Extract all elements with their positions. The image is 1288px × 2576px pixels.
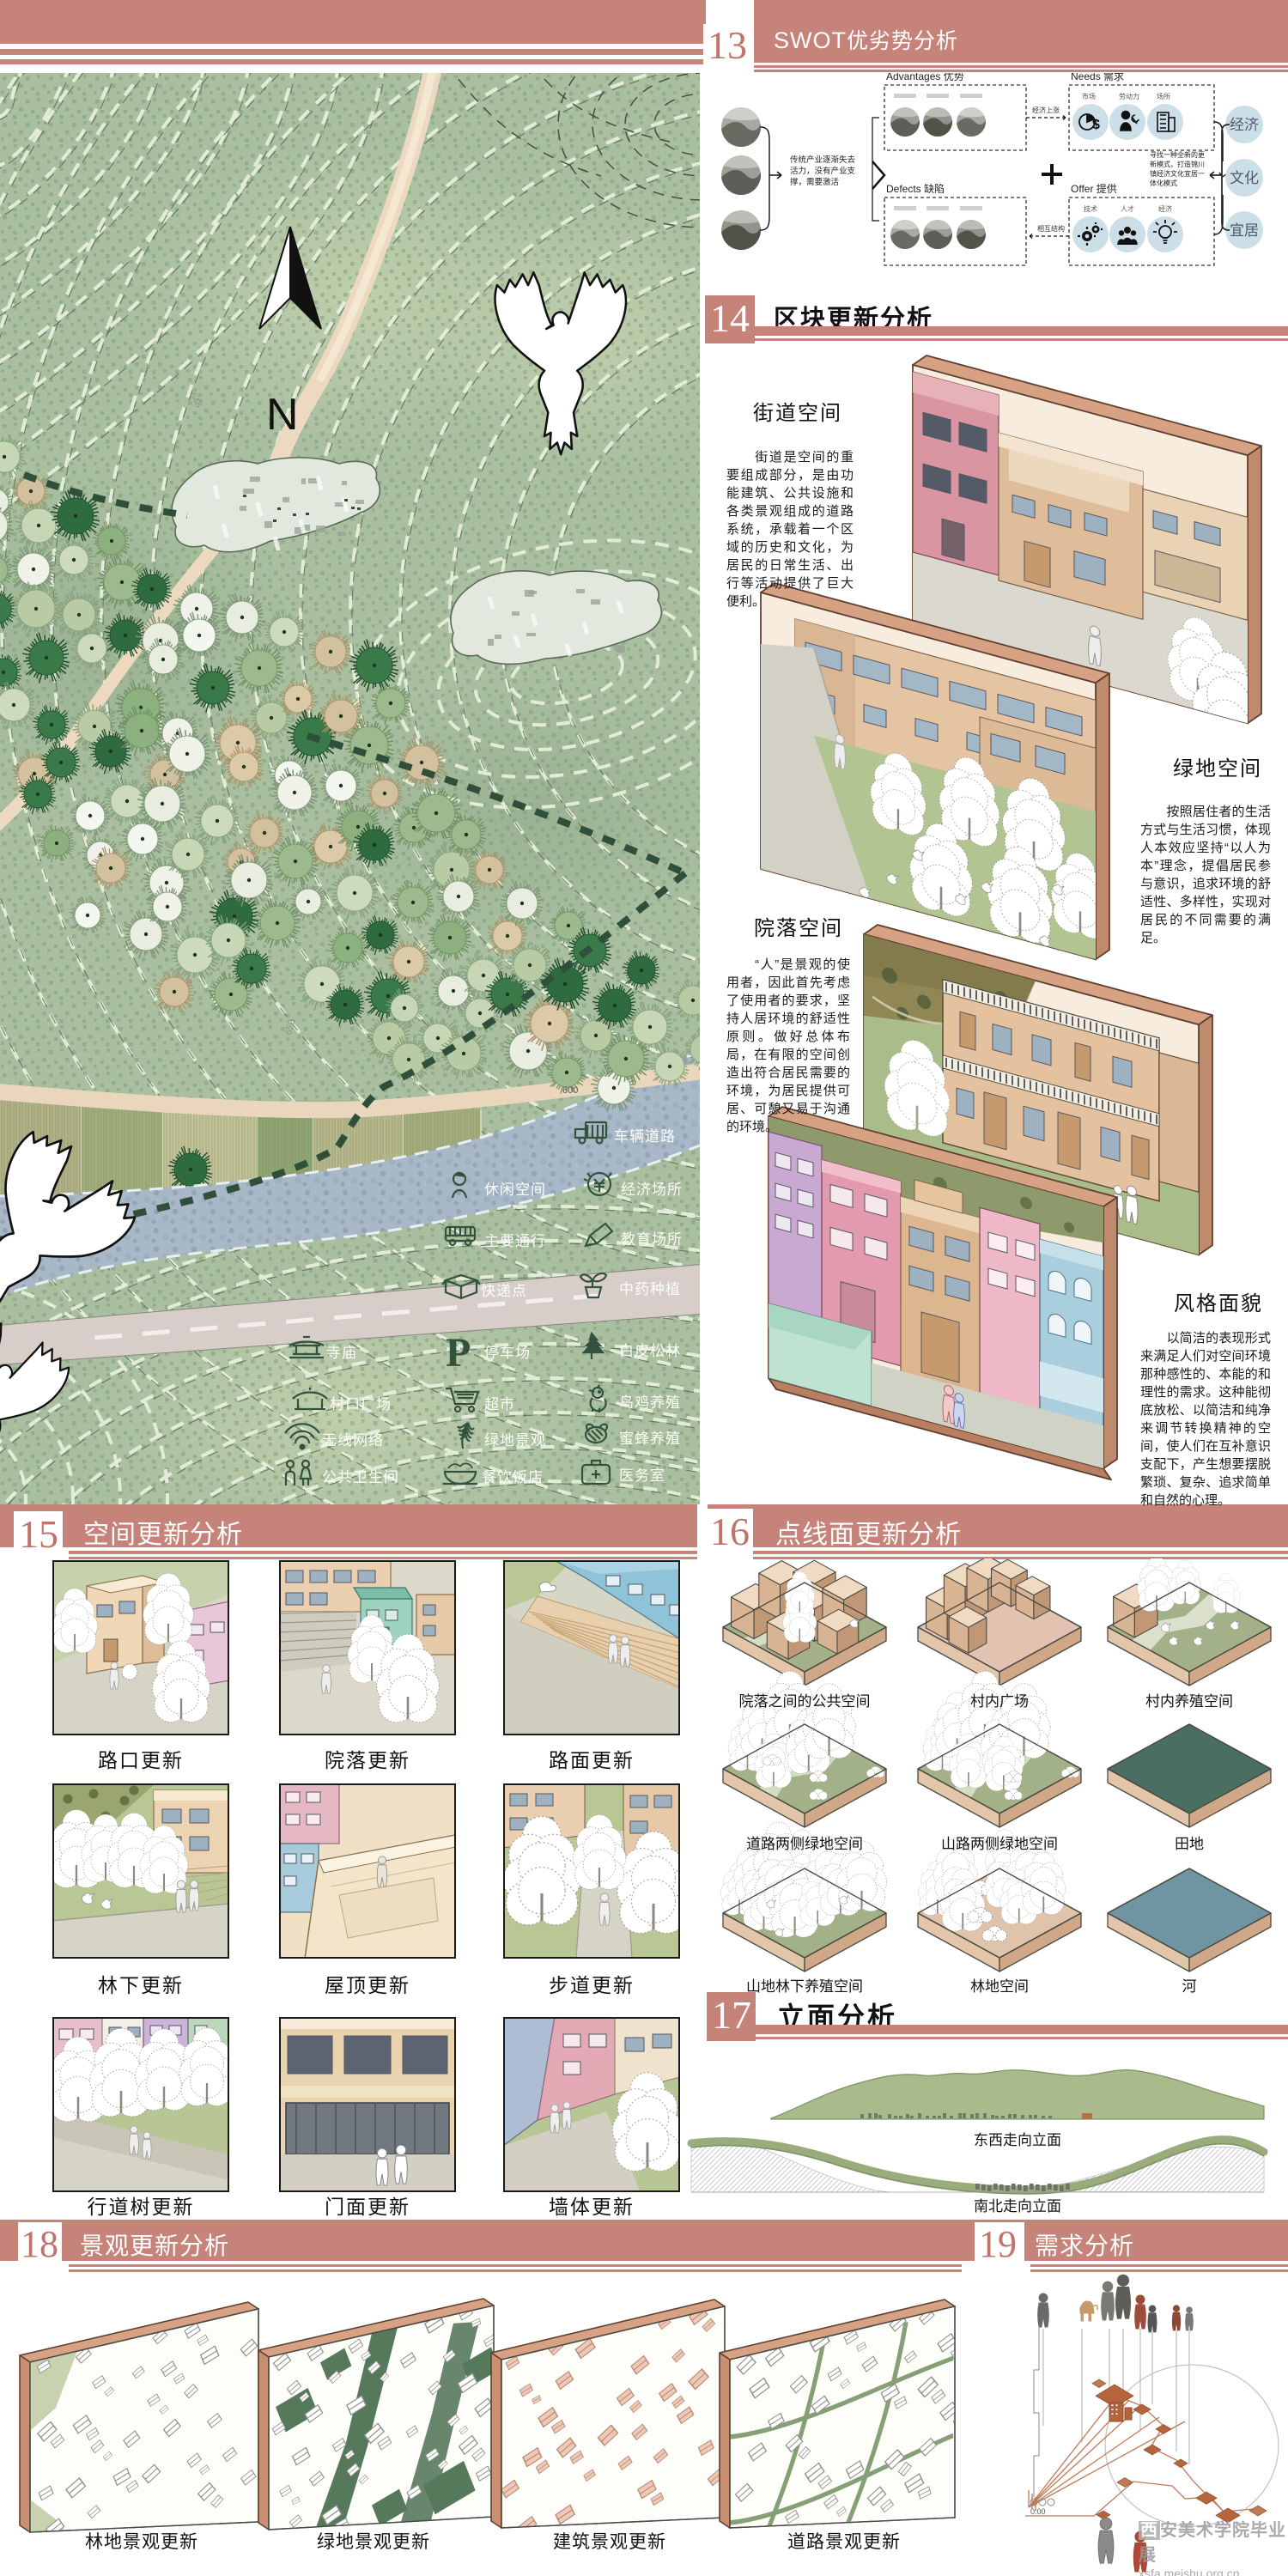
svg-text:寻找一种全新的更: 寻找一种全新的更 xyxy=(1150,150,1205,159)
svg-text:寺庙: 寺庙 xyxy=(326,1345,357,1361)
svg-text:$: $ xyxy=(1092,118,1100,132)
svg-text:宜居: 宜居 xyxy=(1230,222,1259,239)
svg-text:N: N xyxy=(266,390,299,440)
svg-text:医务室: 医务室 xyxy=(619,1467,665,1484)
svg-text:体化模式: 体化模式 xyxy=(1150,179,1177,187)
svg-text:绿地景观: 绿地景观 xyxy=(484,1432,546,1449)
svg-text:Defects 缺陷: Defects 缺陷 xyxy=(886,182,945,195)
svg-text:劳动力: 劳动力 xyxy=(1119,92,1139,100)
svg-text:活力，没有产业支: 活力，没有产业支 xyxy=(790,166,856,176)
svg-text:车辆道路: 车辆道路 xyxy=(614,1128,676,1145)
svg-text:P: P xyxy=(446,1330,471,1376)
svg-text:主要通行: 主要通行 xyxy=(484,1233,546,1249)
svg-text:Advantages 优势: Advantages 优势 xyxy=(886,73,964,82)
svg-text:蜜蜂养殖: 蜜蜂养殖 xyxy=(619,1431,681,1447)
svg-text:中药种植: 中药种植 xyxy=(619,1281,681,1297)
svg-text:撑，需要激活: 撑，需要激活 xyxy=(790,177,840,187)
svg-text:传统产业逐渐失去: 传统产业逐渐失去 xyxy=(790,155,856,165)
svg-text:技术: 技术 xyxy=(1084,204,1097,213)
svg-text:0:00: 0:00 xyxy=(1030,2507,1046,2516)
svg-text:经济场所: 经济场所 xyxy=(621,1182,683,1198)
svg-text:餐饮饭店: 餐饮饭店 xyxy=(482,1469,544,1485)
svg-text:公共卫生间: 公共卫生间 xyxy=(322,1469,399,1485)
svg-text:场所: 场所 xyxy=(1157,92,1170,100)
svg-text:停车场: 停车场 xyxy=(484,1345,531,1361)
svg-text:人才: 人才 xyxy=(1121,204,1134,213)
svg-text:村口广场: 村口广场 xyxy=(330,1396,392,1413)
svg-text:休闲空间: 休闲空间 xyxy=(484,1182,546,1198)
svg-text:600: 600 xyxy=(562,1085,578,1096)
svg-text:市场: 市场 xyxy=(1082,92,1096,100)
svg-text:快递点: 快递点 xyxy=(481,1283,527,1299)
svg-text:教育场所: 教育场所 xyxy=(621,1231,683,1248)
svg-text:Offer 提供: Offer 提供 xyxy=(1071,182,1117,195)
svg-text:文化: 文化 xyxy=(1230,170,1259,186)
svg-text:超市: 超市 xyxy=(484,1396,515,1413)
svg-text:经济上涨: 经济上涨 xyxy=(1032,106,1060,114)
svg-text:白皮松林: 白皮松林 xyxy=(619,1343,681,1359)
svg-text:经济: 经济 xyxy=(1158,204,1172,213)
svg-text:无线网络: 无线网络 xyxy=(322,1432,384,1449)
svg-text:相互结构: 相互结构 xyxy=(1037,224,1065,233)
svg-text:新模式，打造锦川: 新模式，打造锦川 xyxy=(1150,160,1205,168)
svg-text:经济: 经济 xyxy=(1230,117,1259,133)
svg-text:Needs 需求: Needs 需求 xyxy=(1071,73,1124,82)
svg-text:鸟鸡养殖: 鸟鸡养殖 xyxy=(619,1394,681,1411)
svg-text:镇经济文化宜居一: 镇经济文化宜居一 xyxy=(1150,169,1205,178)
